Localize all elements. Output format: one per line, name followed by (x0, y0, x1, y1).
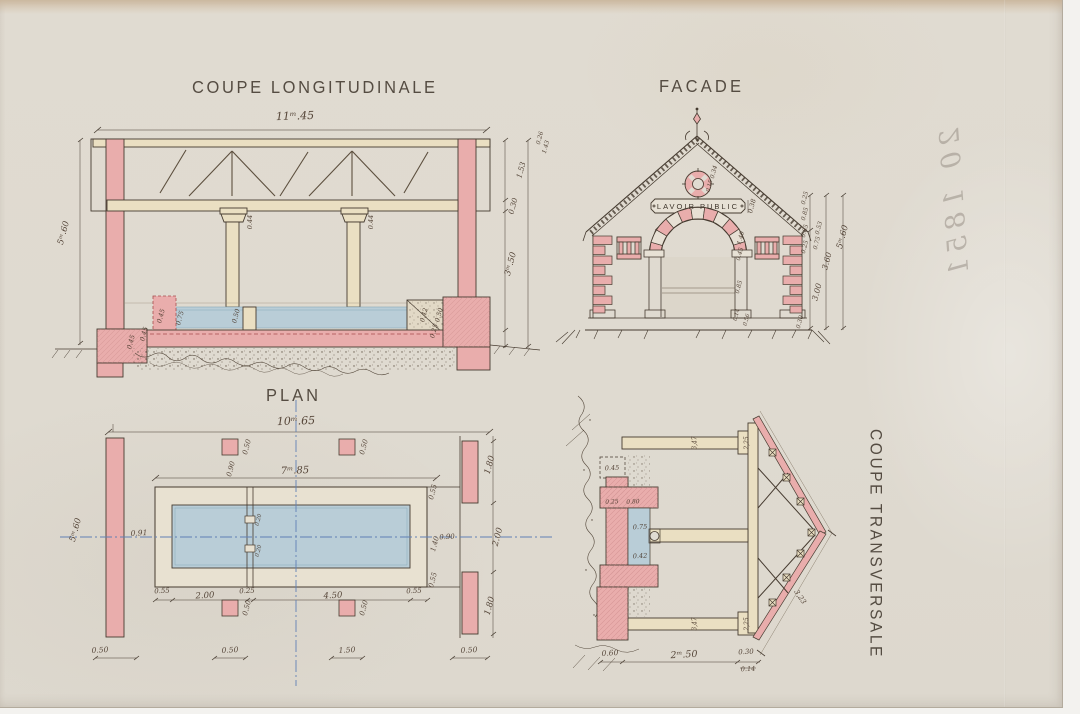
drawing-linework (0, 0, 1080, 714)
transverse-section-drawing (566, 396, 836, 671)
plan-drawing (60, 400, 553, 686)
scanned-drawing-sheet: COUPE LONGITUDINALE FACADE PLAN COUPE TR… (0, 0, 1080, 714)
title-coupe-longitudinale: COUPE LONGITUDINALE (192, 79, 438, 99)
longitudinal-section-drawing (52, 127, 540, 377)
title-facade: FACADE (659, 78, 744, 98)
facade-drawing (556, 108, 846, 344)
lavoir-public-sign: LAVOIR PUBLIC (651, 200, 745, 213)
title-coupe-transversale: COUPE TRANSVERSALE (865, 429, 884, 659)
title-plan: PLAN (266, 387, 321, 407)
